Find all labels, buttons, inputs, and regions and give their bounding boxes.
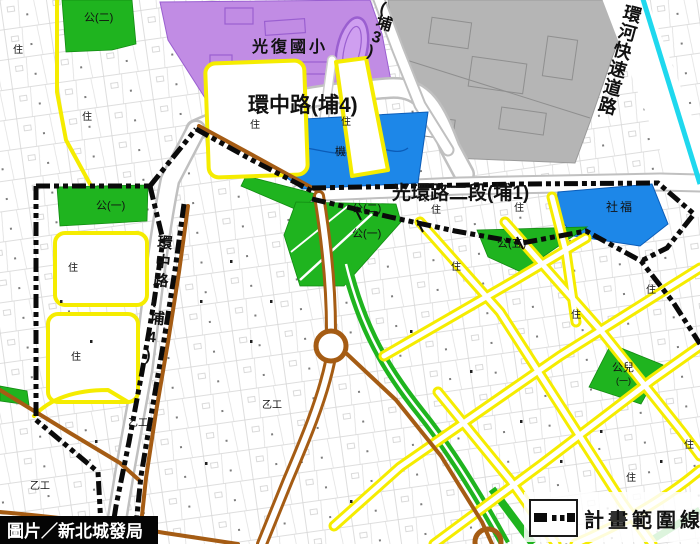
label-park-1: 公(一): [352, 228, 381, 240]
legend: 計畫範圍線: [524, 492, 700, 542]
park-2-topleft: [62, 0, 136, 52]
label-residential: 住: [431, 203, 441, 216]
label-park-2: 公(二): [352, 203, 381, 215]
label-residential: 住: [684, 438, 694, 451]
map-canvas: 光復國小 環中路(埔4) 光環路二段(埔1) 環河快速道路 (埔3) 環中路(埔…: [0, 0, 700, 544]
label-park-1: 公(一): [96, 200, 125, 212]
label-residential: 住: [646, 283, 656, 296]
label-residential: 住: [451, 260, 461, 273]
label-residential: 住: [71, 350, 81, 363]
label-social-welfare: 社福: [606, 199, 634, 214]
cul-de-sac-loop: [316, 331, 346, 361]
label-park-child: 公兒: [612, 361, 634, 374]
label-road-huanzhong-h: 環中路(埔4): [248, 93, 358, 117]
label-residential: 住: [250, 118, 260, 131]
label-school: 光復國小: [251, 37, 328, 56]
label-industrial: 乙工: [30, 480, 50, 492]
label-residential: 住: [82, 110, 92, 123]
label-industrial: 乙工: [262, 399, 282, 411]
label-industrial: 乙工: [128, 417, 148, 429]
credit-caption: 圖片／新北城發局: [0, 516, 158, 544]
label-park-child-sub: (一): [616, 376, 631, 386]
label-park-2: 公(二): [84, 12, 113, 24]
label-residential: 住: [68, 261, 78, 274]
label-residential: 住: [571, 308, 581, 321]
label-residential: 住: [514, 201, 524, 214]
residential-block: [205, 60, 308, 177]
caption-label: 圖片／新北城發局: [7, 521, 143, 541]
legend-label: 計畫範圍線: [584, 508, 700, 532]
label-road-guanghuan: 光環路二段(埔1): [391, 181, 529, 204]
label-residential: 住: [13, 43, 23, 56]
label-residential: 住: [341, 115, 351, 128]
label-park-5: 公(五): [497, 238, 526, 250]
label-agency: 機: [335, 144, 346, 158]
label-residential: 住: [626, 471, 636, 484]
planning-map: 光復國小 環中路(埔4) 光環路二段(埔1) 環河快速道路 (埔3) 環中路(埔…: [0, 0, 700, 544]
